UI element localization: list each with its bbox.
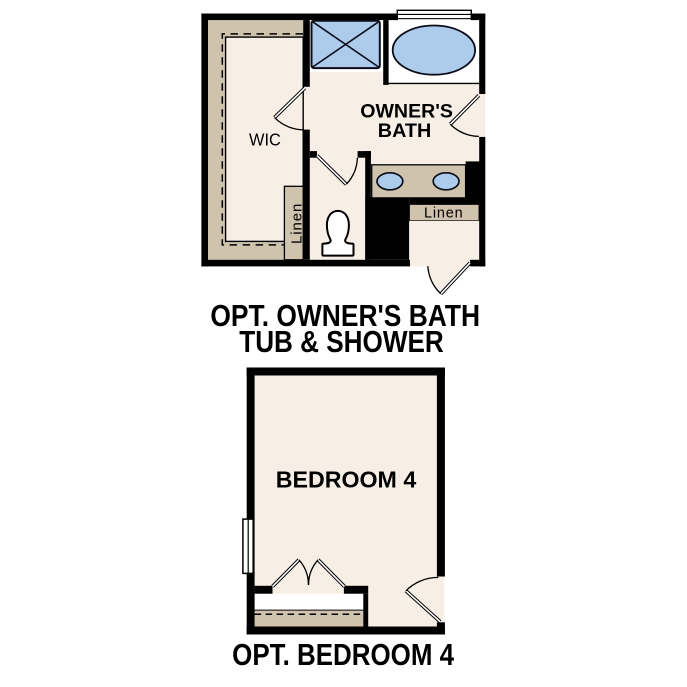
svg-text:Linen: Linen — [424, 206, 463, 222]
svg-text:OPT. BEDROOM 4: OPT. BEDROOM 4 — [232, 638, 454, 671]
svg-text:OWNER'S: OWNER'S — [360, 100, 453, 122]
svg-text:BEDROOM 4: BEDROOM 4 — [276, 467, 417, 493]
svg-text:WIC: WIC — [249, 129, 281, 150]
svg-text:Linen: Linen — [289, 203, 306, 244]
svg-text:BATH: BATH — [378, 120, 431, 142]
svg-text:TUB & SHOWER: TUB & SHOWER — [239, 325, 443, 359]
